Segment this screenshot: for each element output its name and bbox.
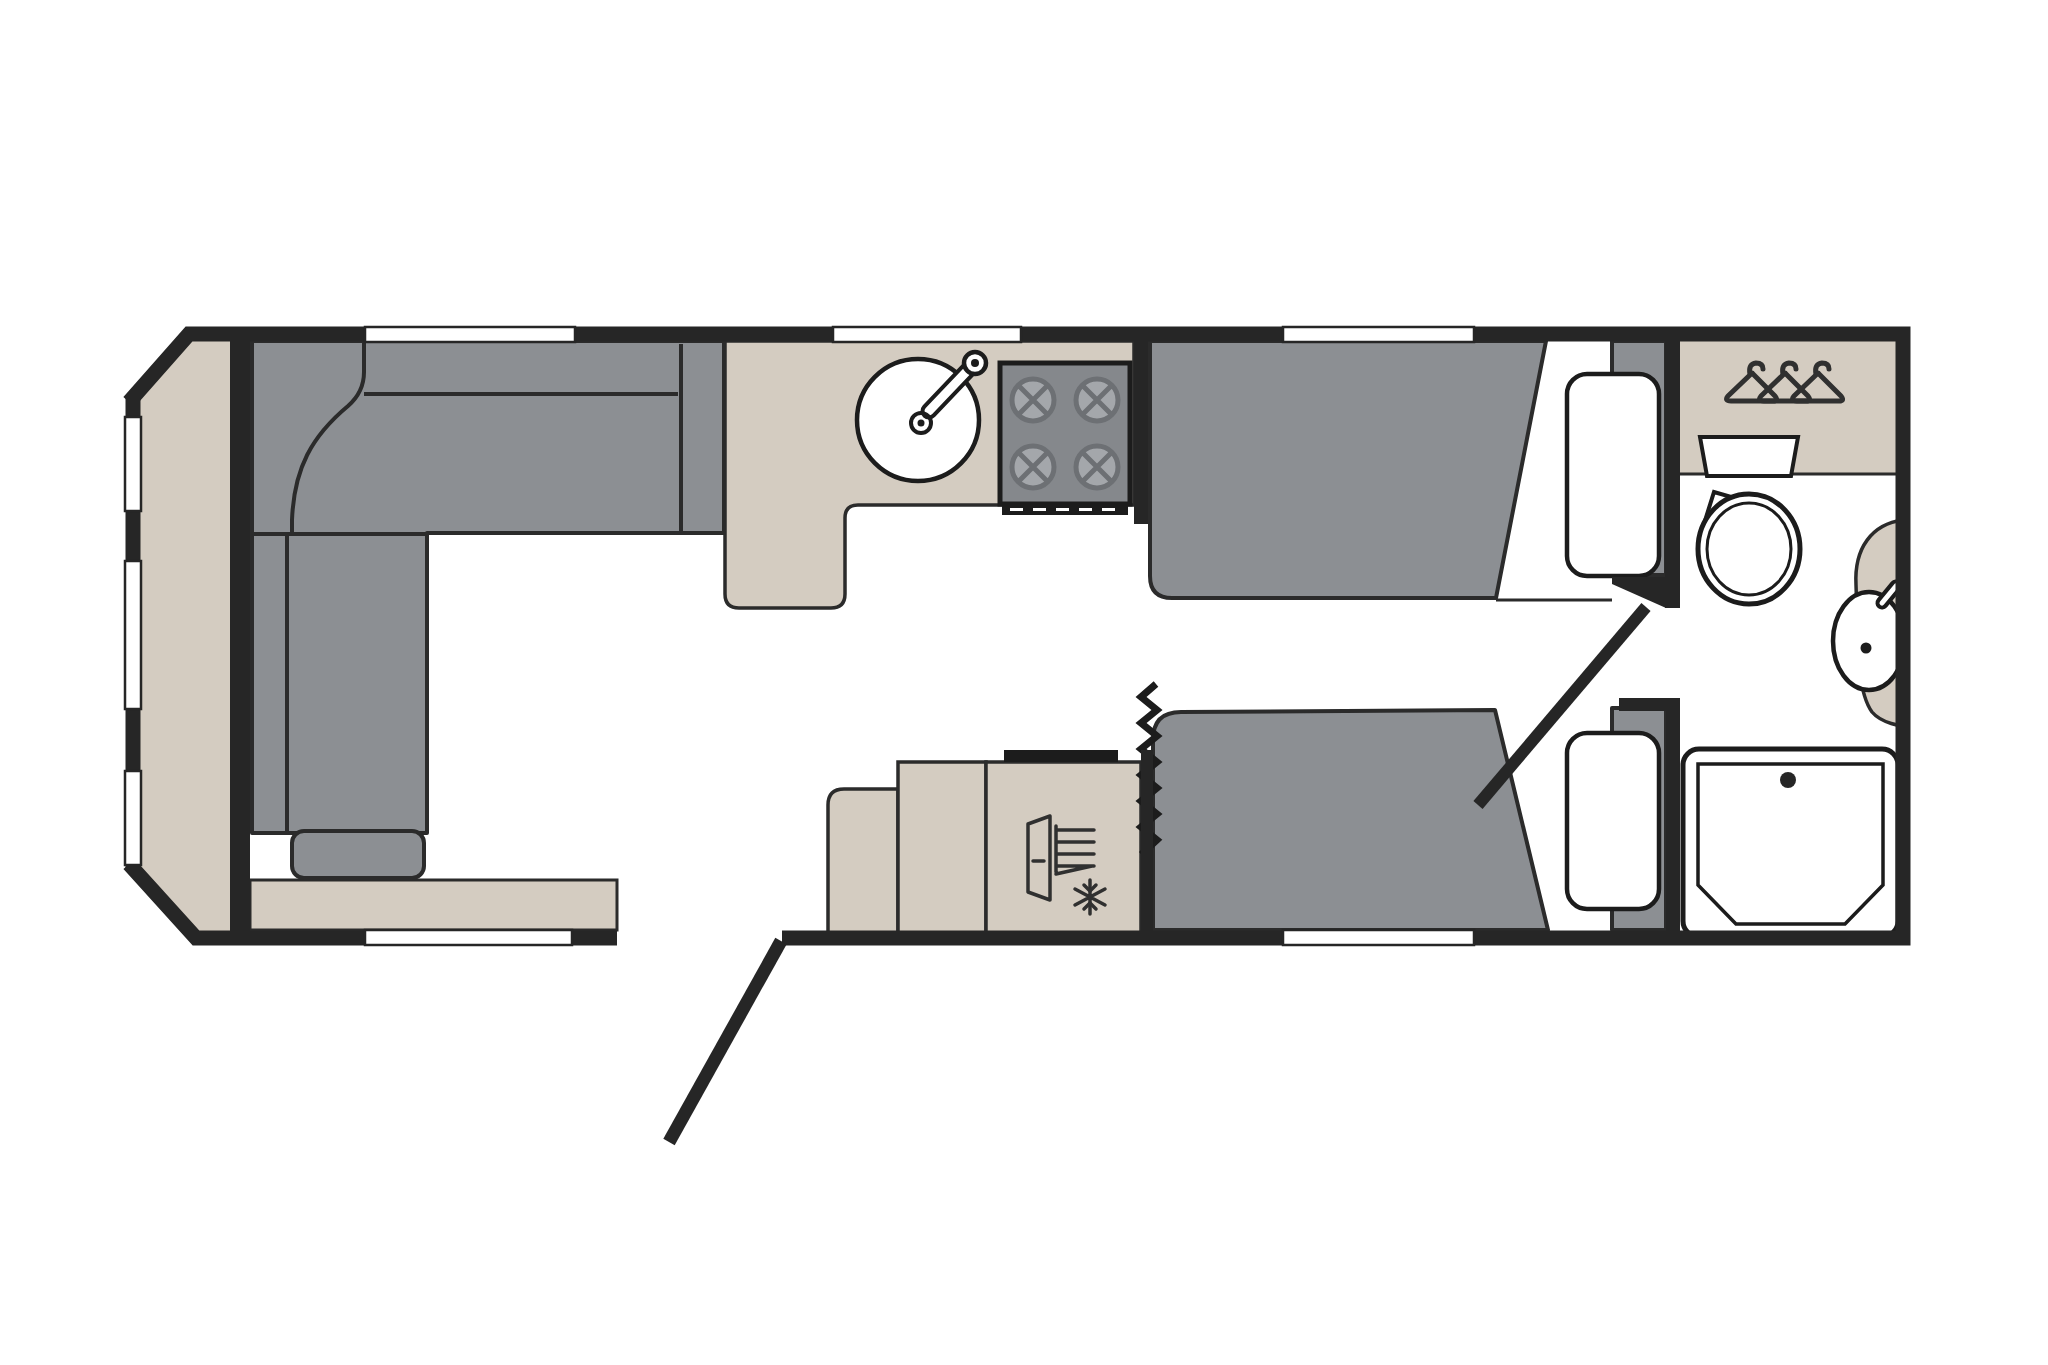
bed-offside-mattress xyxy=(1150,341,1546,598)
fridge-bed-partition xyxy=(1141,750,1153,937)
washroom-partition-top xyxy=(1665,334,1680,608)
corner-basin xyxy=(1833,592,1905,690)
bed-nearside-mattress xyxy=(1153,710,1548,930)
washroom-partition-stub xyxy=(1619,698,1680,711)
fridge-vent-band xyxy=(1004,750,1118,762)
pillow-offside xyxy=(1567,374,1659,576)
entry-door-leaf xyxy=(669,941,781,1142)
toilet-cistern xyxy=(1700,437,1798,476)
basin-drain-dot xyxy=(1861,643,1872,654)
window-top-lounge xyxy=(365,327,575,342)
pillow-nearside xyxy=(1567,733,1659,909)
toilet-bowl xyxy=(1698,494,1800,604)
fridge-freezer xyxy=(986,762,1141,937)
sink-drain-dot xyxy=(918,420,925,427)
step-unit xyxy=(828,789,898,937)
window-bottom-lounge xyxy=(365,930,572,945)
lounge-shelf xyxy=(250,880,617,930)
window-front-3 xyxy=(125,771,141,865)
window-top-bedroom xyxy=(1283,327,1474,342)
shower-drain xyxy=(1780,772,1796,788)
caravan-floorplan xyxy=(0,0,2048,1365)
washroom-partition-bottom xyxy=(1666,698,1680,944)
window-front-1 xyxy=(125,417,141,511)
sofa-small-cushion xyxy=(292,831,424,878)
cabinet-unit xyxy=(898,762,986,937)
sink-tap-knob-dot xyxy=(971,359,979,367)
window-front-2 xyxy=(125,561,141,709)
front-bulkhead xyxy=(230,334,250,945)
kitchen-bed-partition xyxy=(1134,334,1148,524)
window-top-kitchen xyxy=(833,327,1021,342)
floorplan-canvas xyxy=(0,0,2048,1365)
window-bottom-bedroom xyxy=(1283,930,1474,945)
